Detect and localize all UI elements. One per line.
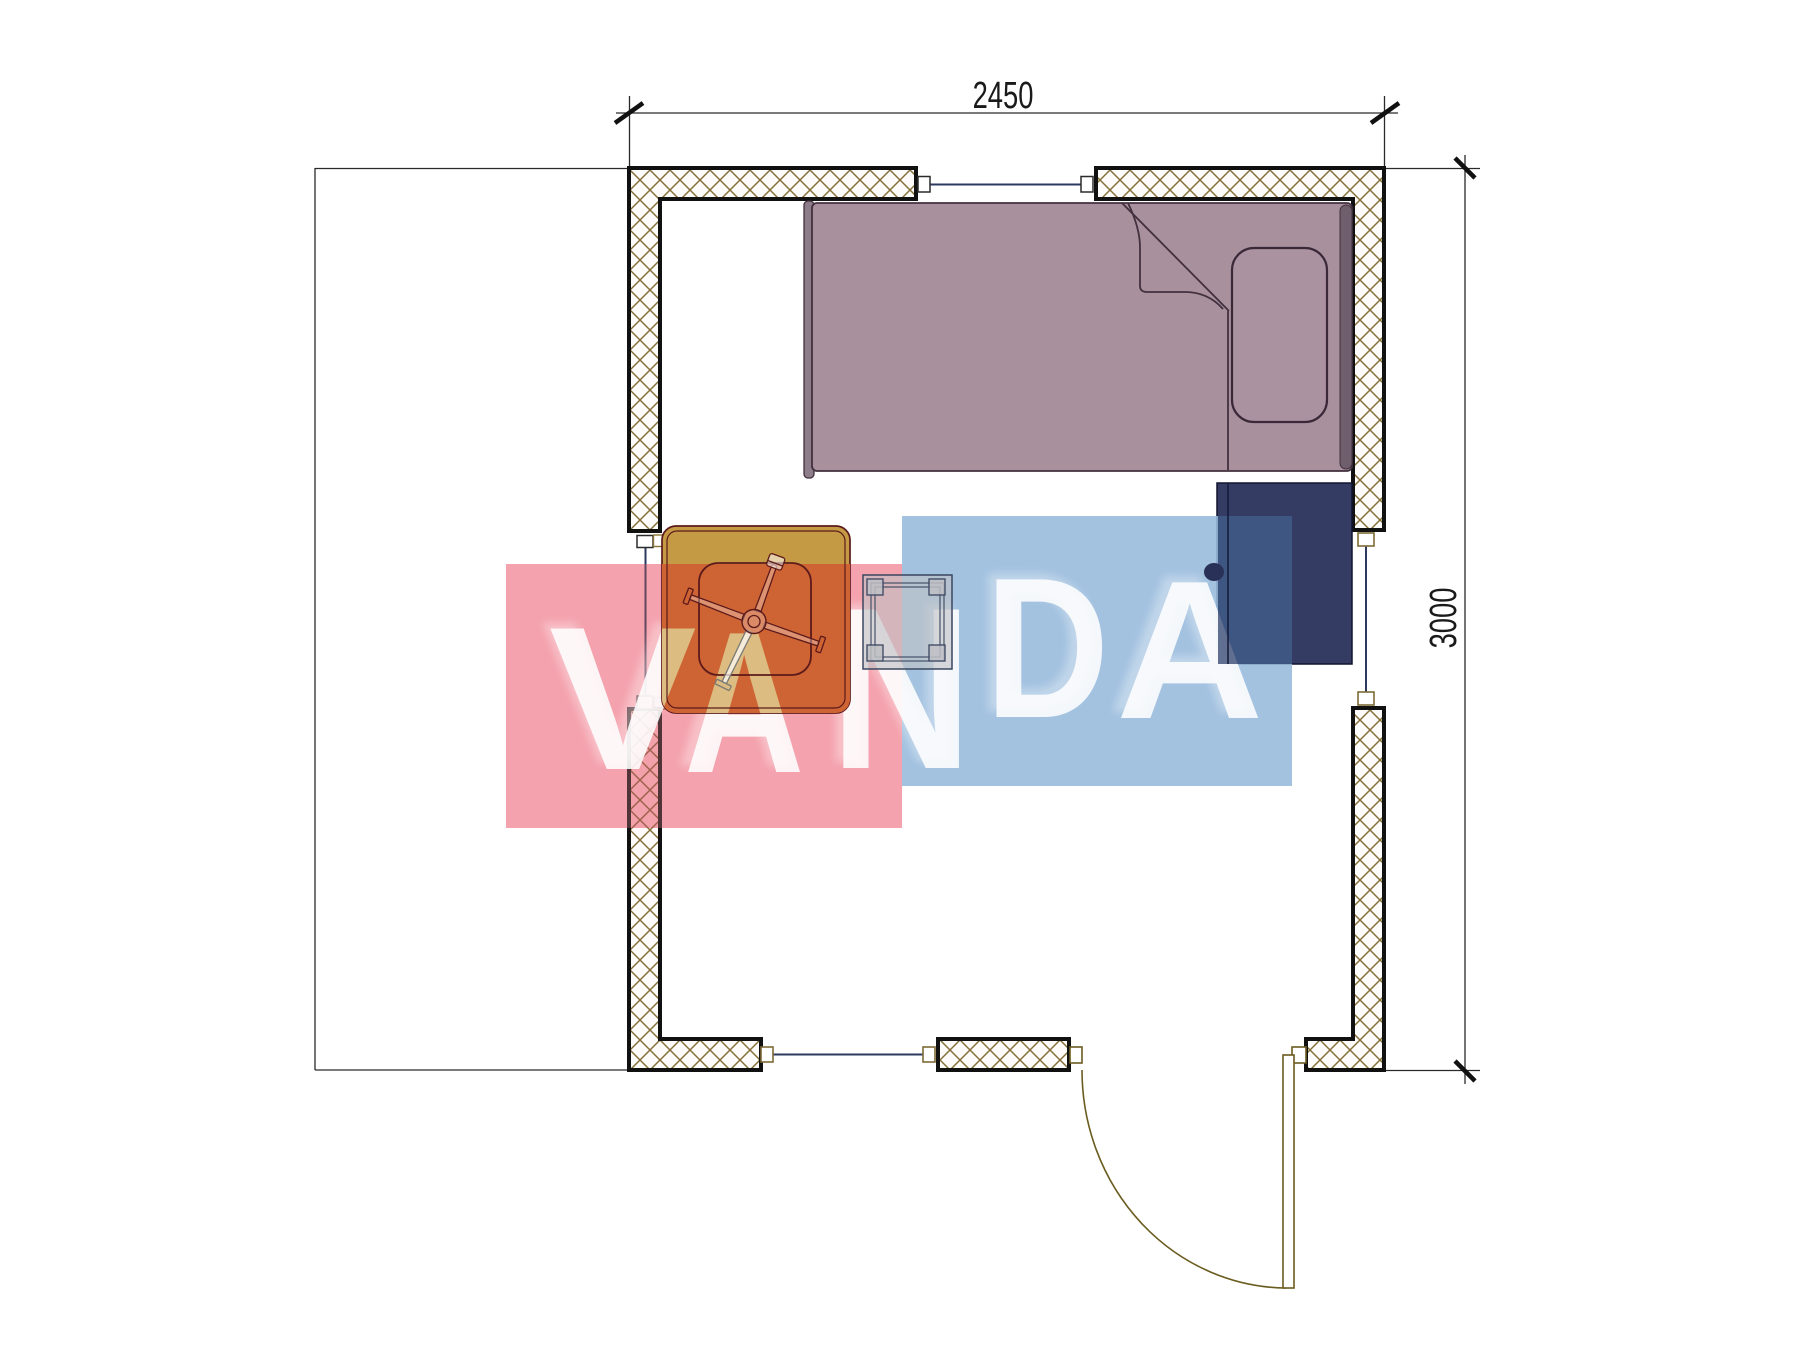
svg-text:2450: 2450 (973, 75, 1034, 117)
svg-text:D: D (985, 536, 1109, 760)
svg-text:3000: 3000 (1423, 588, 1465, 649)
